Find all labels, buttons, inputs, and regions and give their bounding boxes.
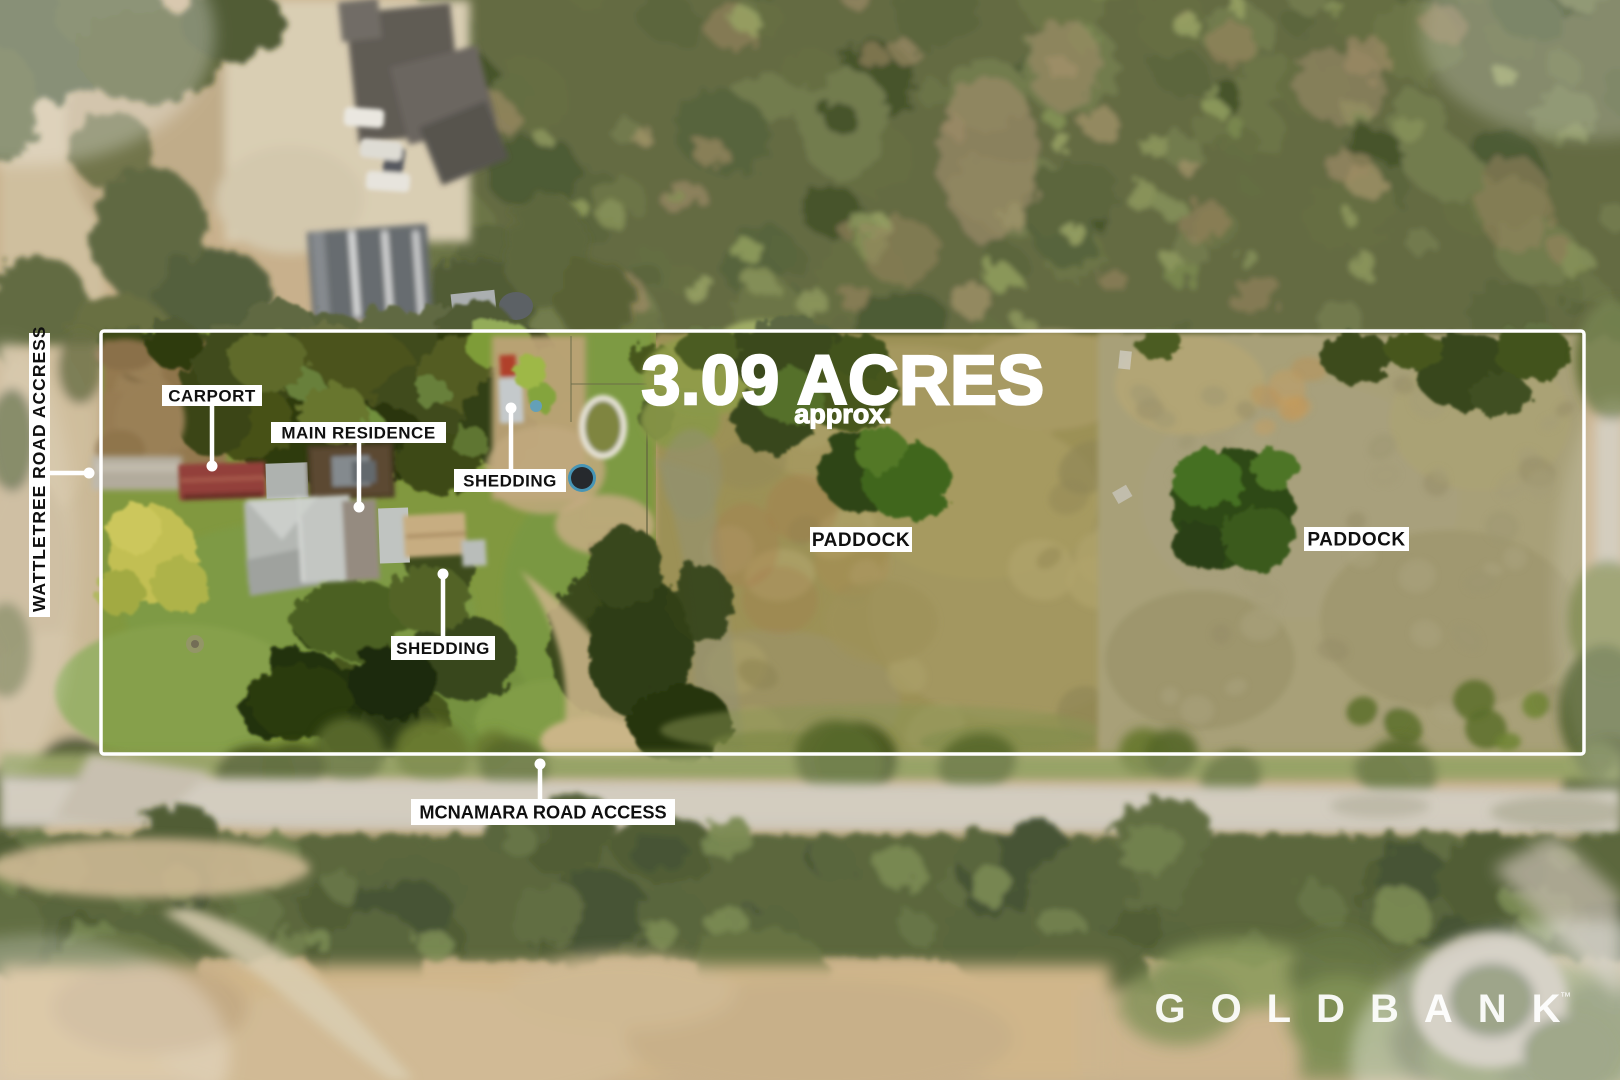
svg-text:PADDOCK: PADDOCK: [1307, 530, 1405, 551]
svg-text:™: ™: [1560, 991, 1571, 1003]
svg-text:MCNAMARA ROAD ACCESS: MCNAMARA ROAD ACCESS: [419, 803, 666, 823]
svg-text:GOLDBANK: GOLDBANK: [1154, 987, 1585, 1031]
svg-text:SHEDDING: SHEDDING: [463, 472, 557, 491]
svg-text:MAIN RESIDENCE: MAIN RESIDENCE: [281, 424, 435, 443]
svg-text:CARPORT: CARPORT: [168, 387, 256, 406]
svg-text:approx.: approx.: [794, 399, 892, 429]
svg-text:WATTLETREE ROAD ACCRESS: WATTLETREE ROAD ACCRESS: [29, 326, 49, 612]
svg-text:PADDOCK: PADDOCK: [812, 530, 910, 551]
svg-text:SHEDDING: SHEDDING: [396, 639, 490, 658]
